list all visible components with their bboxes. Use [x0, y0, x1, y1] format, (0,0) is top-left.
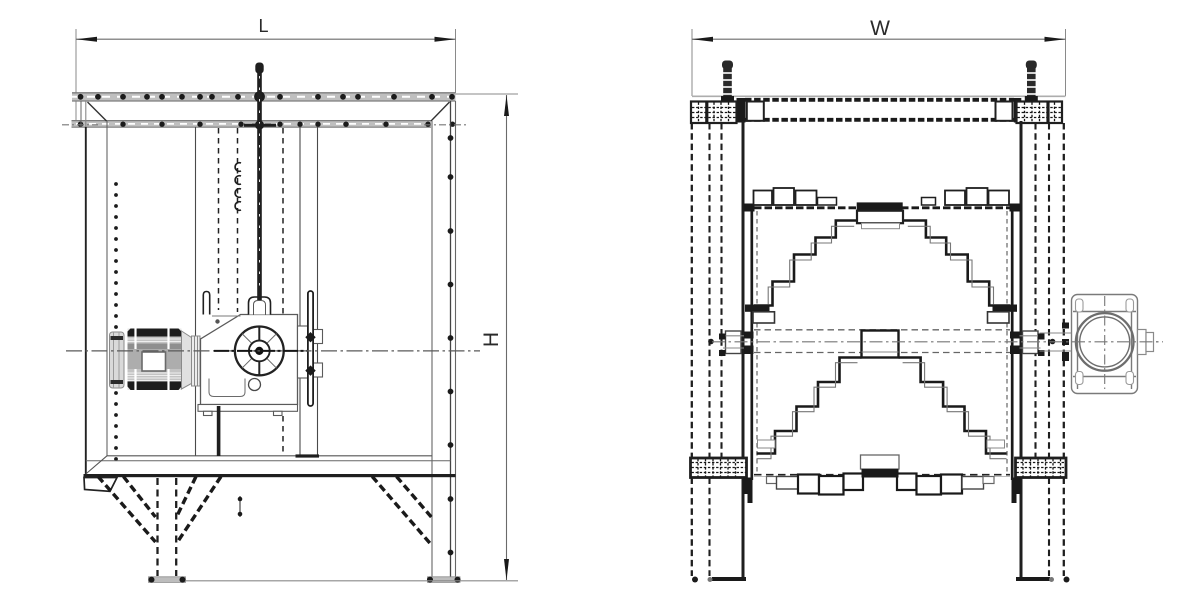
svg-text:L: L [258, 16, 268, 36]
svg-text:H: H [480, 332, 503, 347]
svg-text:W: W [870, 17, 890, 40]
